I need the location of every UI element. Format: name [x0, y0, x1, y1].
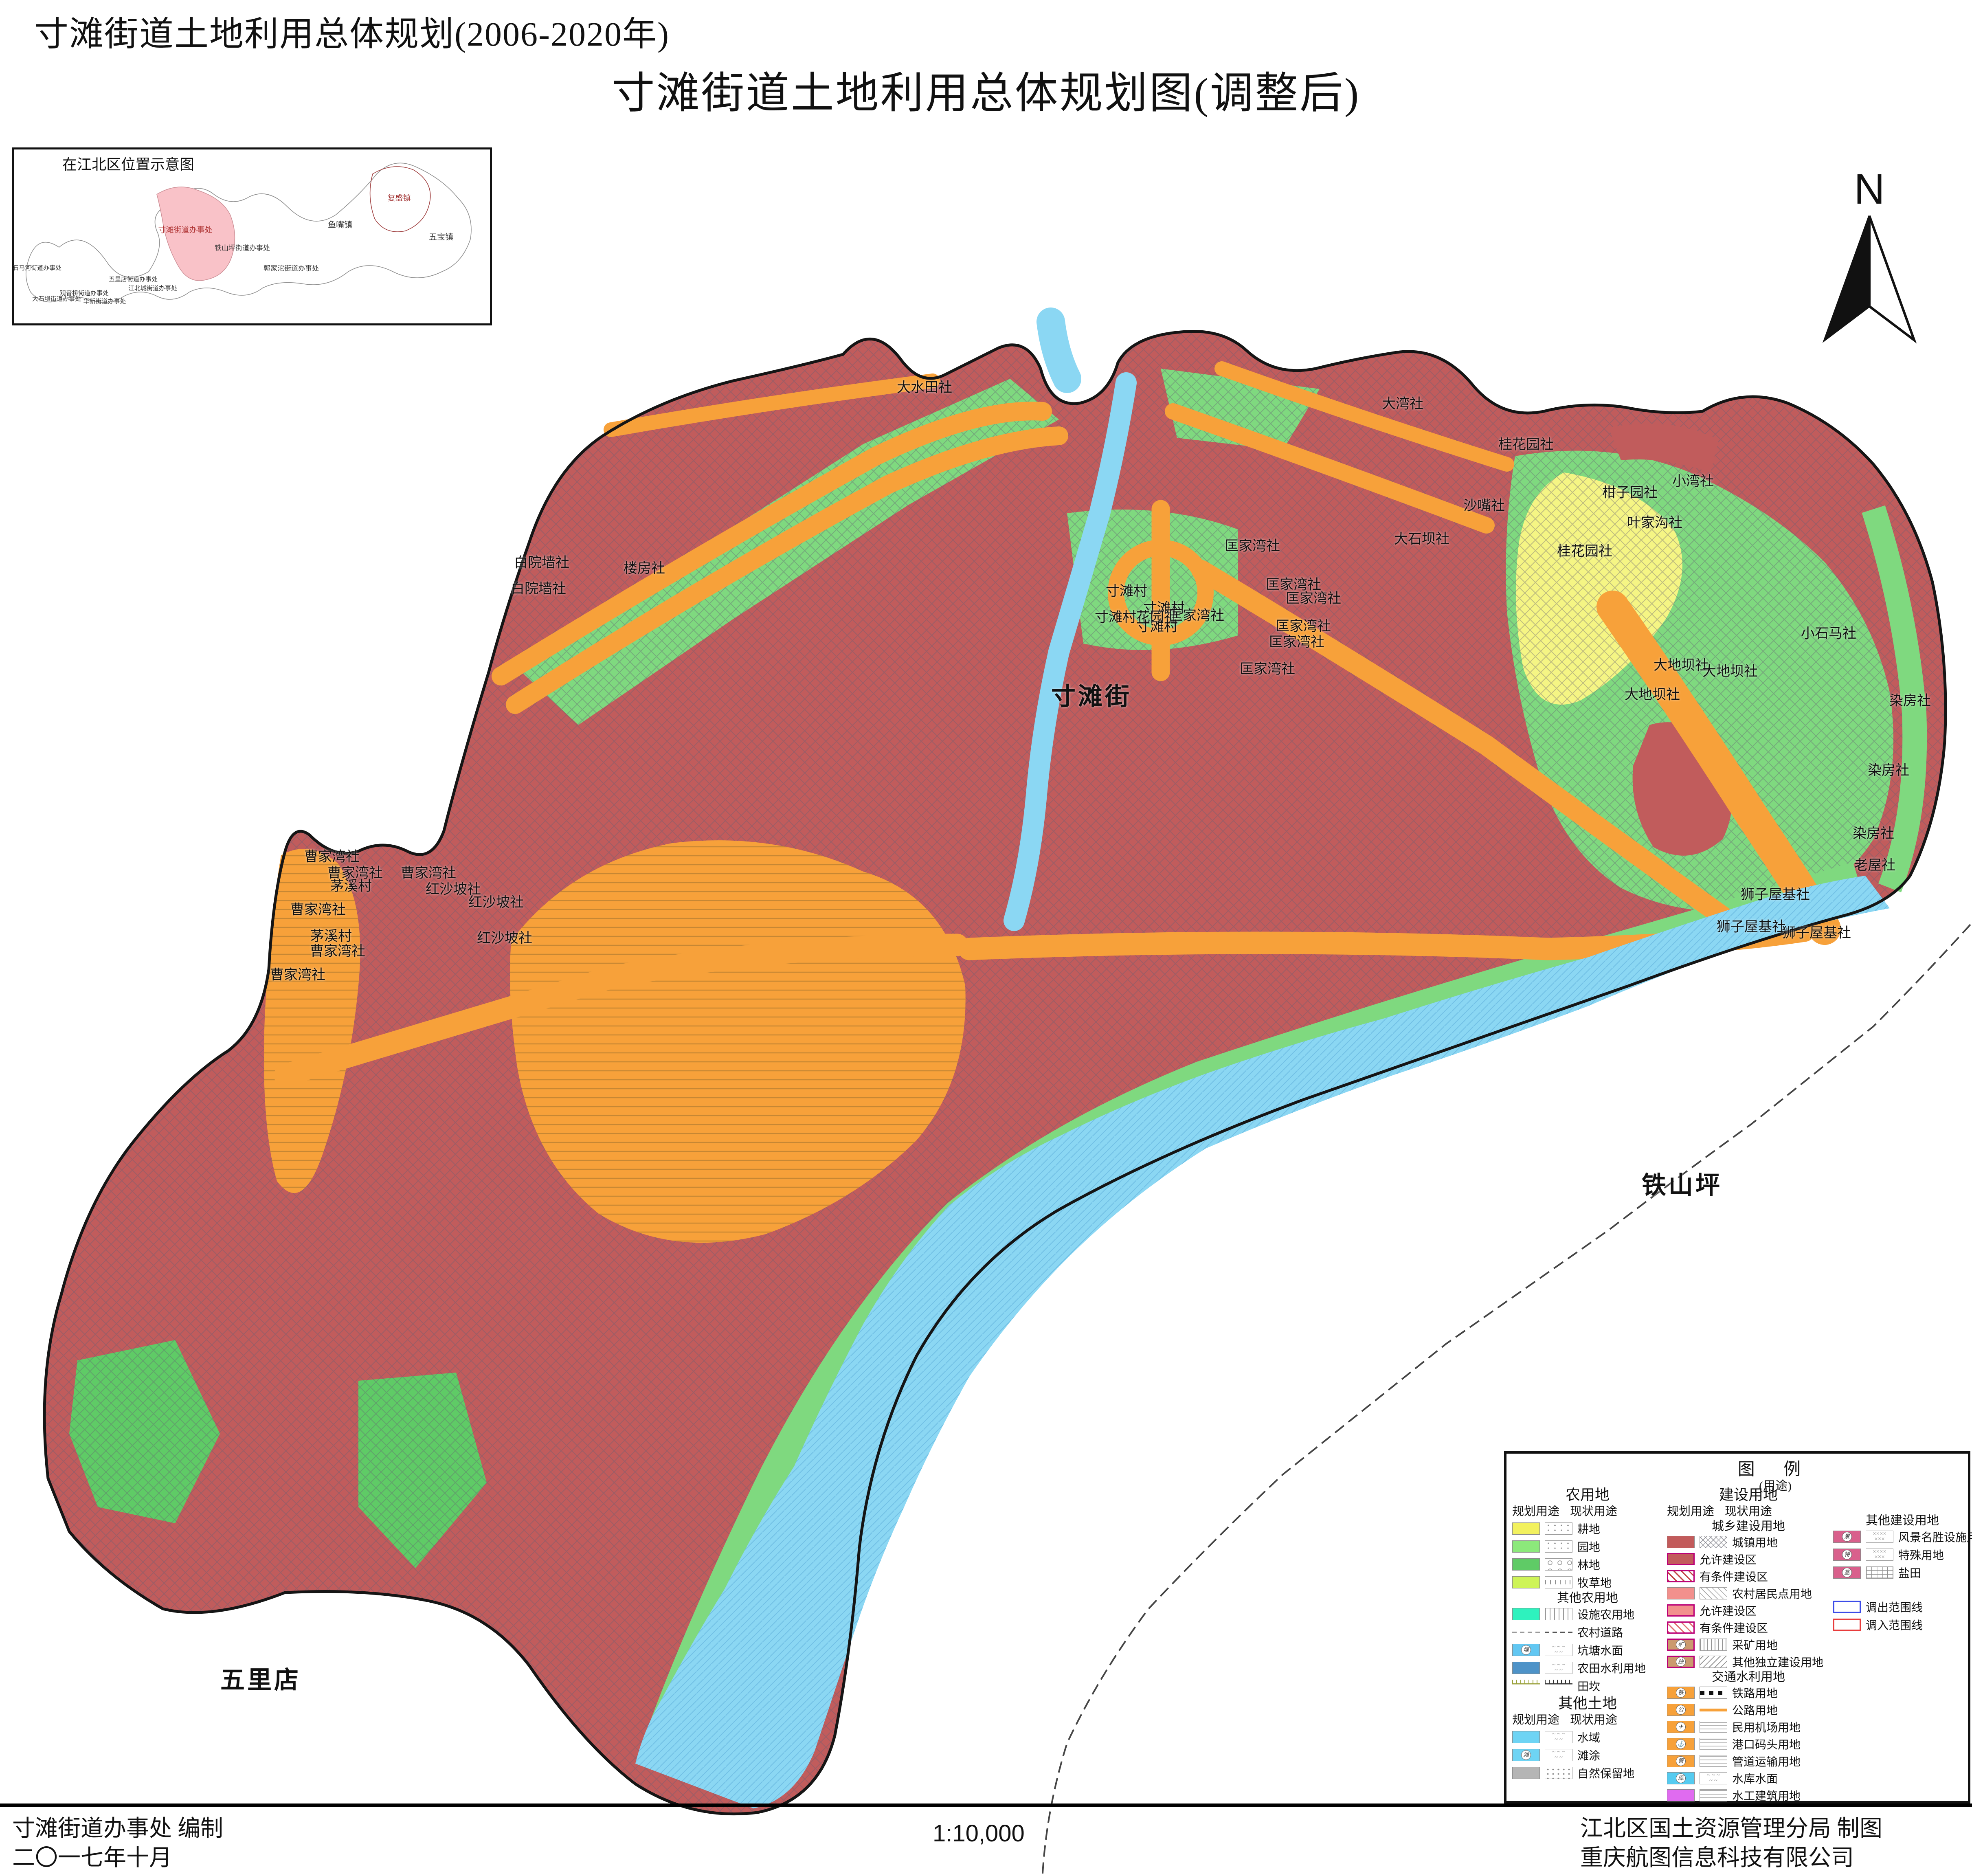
legend-symbol-icon: 独 [1676, 1657, 1686, 1667]
inset-label: 大石坝街道办事处 [32, 294, 81, 303]
inset-label: 复盛镇 [387, 192, 411, 203]
legend-row: 特特殊用地 [1833, 1546, 1972, 1564]
legend-section-title: 建设用地 [1667, 1486, 1830, 1503]
legend-plan-swatch: 特 [1833, 1549, 1861, 1561]
legend-label: 调入范围线 [1866, 1617, 1923, 1633]
inset-label: 五宝镇 [429, 231, 453, 242]
legend-label: 铁路用地 [1732, 1685, 1778, 1701]
map-label: 大水田社 [897, 376, 952, 396]
legend-status-swatch [1545, 1644, 1572, 1656]
map-label: 大地坝社 [1702, 660, 1758, 680]
legend-plan-swatch: 塘 [1512, 1644, 1540, 1656]
legend-column-construction: 建设用地规划用途现状用途城乡建设用地城镇用地允许建设区有条件建设区农村居民点用地… [1667, 1486, 1830, 1804]
legend-label: 自然保留地 [1577, 1765, 1634, 1781]
legend-label: 城镇用地 [1732, 1534, 1778, 1550]
legend-plan-swatch: 管 [1667, 1755, 1695, 1767]
legend-row: 园地 [1512, 1538, 1663, 1555]
legend-plan-swatch: 铁 [1667, 1687, 1695, 1699]
inset-label: 铁山坪街道办事处 [215, 242, 270, 253]
inset-label: 华新街道办事处 [83, 297, 126, 305]
legend-status-swatch [1545, 1626, 1572, 1638]
map-label: 染房社 [1868, 759, 1909, 779]
legend-plan-swatch: 独 [1667, 1656, 1695, 1668]
legend-status-swatch [1700, 1789, 1727, 1801]
legend-label: 允许建设区 [1700, 1551, 1757, 1567]
map-label: 柑子园社 [1602, 481, 1658, 501]
legend-plan-swatch: ⚓ [1667, 1738, 1695, 1750]
legend-symbol-icon: 矿 [1676, 1640, 1686, 1650]
legend-plan-swatch [1512, 1576, 1540, 1588]
legend-label: 采矿用地 [1732, 1637, 1778, 1653]
legend-status-swatch [1866, 1566, 1893, 1579]
map-label: 白院墙社 [514, 551, 569, 571]
legend-symbol-icon: 特 [1842, 1550, 1852, 1560]
legend-label: 滩涂 [1577, 1747, 1600, 1763]
legend-label: 水库水面 [1732, 1770, 1778, 1786]
legend-status-swatch [1700, 1587, 1727, 1599]
map-label: 大地坝社 [1625, 683, 1680, 703]
legend-plan-swatch [1667, 1536, 1695, 1548]
legend-plan-swatch [1512, 1626, 1540, 1638]
legend-status-swatch [1545, 1558, 1572, 1571]
map-label: 小石马社 [1801, 622, 1856, 642]
planned-use-header: 规划用途 [1512, 1712, 1559, 1728]
legend-plan-swatch [1512, 1767, 1540, 1779]
legend-row: 城镇用地 [1667, 1533, 1830, 1551]
legend-status-swatch [1700, 1738, 1727, 1750]
legend-label: 管道运输用地 [1732, 1753, 1801, 1769]
legend-status-swatch [1700, 1536, 1727, 1548]
legend-row: 田坎 [1512, 1677, 1663, 1695]
inset-label: 郭家沱街道办事处 [264, 263, 319, 273]
legend-spacer [1833, 1582, 1972, 1598]
map-label: 狮子屋基社 [1717, 916, 1786, 936]
legend: 图 例 (用途) 农用地规划用途现状用途耕地园地林地牧草地其他农用地设施农用地农… [1504, 1451, 1970, 1804]
legend-row: 调入范围线 [1833, 1616, 1972, 1634]
legend-label: 有条件建设区 [1700, 1568, 1768, 1584]
footer-cartography: 江北区国土资源管理分局 制图 [1580, 1810, 1882, 1843]
legend-symbol-icon: 铁 [1676, 1688, 1686, 1698]
map-label: 楼房社 [624, 557, 665, 577]
map-label: 寸滩村 [1106, 580, 1147, 600]
map-label: 桂花园社 [1498, 433, 1554, 453]
legend-symbol-icon: 塘 [1521, 1645, 1531, 1655]
legend-symbol-icon: ⚓ [1676, 1739, 1686, 1749]
legend-plan-swatch [1512, 1608, 1540, 1620]
footer-compiler: 寸滩街道办事处 编制 [12, 1810, 223, 1843]
legend-row: 滩滩涂 [1512, 1746, 1663, 1764]
legend-status-swatch [1545, 1608, 1572, 1620]
legend-status-swatch [1545, 1749, 1572, 1761]
legend-status-swatch [1545, 1522, 1572, 1535]
legend-row: 盐盐田 [1833, 1564, 1972, 1582]
map-label: 曹家湾社 [270, 964, 325, 984]
footer-company: 重庆航图信息科技有限公司 [1580, 1839, 1854, 1872]
legend-label: 园地 [1577, 1538, 1600, 1555]
legend-status-swatch [1700, 1704, 1727, 1716]
legend-row: 库水库水面 [1667, 1770, 1830, 1787]
legend-plan-swatch [1833, 1601, 1861, 1613]
legend-row: 景风景名胜设施用地 [1833, 1528, 1972, 1546]
map-label: 五里店 [220, 1661, 301, 1696]
legend-status-swatch [1866, 1549, 1893, 1561]
map-scale: 1:10,000 [933, 1820, 1025, 1847]
legend-status-swatch [1700, 1772, 1727, 1784]
map-label: 狮子屋基社 [1741, 883, 1810, 903]
legend-status-swatch [1545, 1767, 1572, 1779]
legend-row: ⚓港口码头用地 [1667, 1735, 1830, 1753]
legend-row: 自然保留地 [1512, 1764, 1663, 1782]
legend-label: 耕地 [1577, 1520, 1600, 1537]
legend-label: 水域 [1577, 1729, 1600, 1745]
legend-status-swatch [1545, 1680, 1572, 1692]
legend-plan-swatch: 盐 [1833, 1566, 1861, 1579]
legend-label: 公路用地 [1732, 1702, 1778, 1718]
current-use-header: 现状用途 [1570, 1712, 1617, 1728]
legend-row: 独其他独立建设用地 [1667, 1653, 1830, 1670]
legend-status-swatch [1700, 1721, 1727, 1733]
legend-label: 林地 [1577, 1556, 1600, 1573]
legend-status-swatch [1700, 1639, 1727, 1651]
legend-symbol-icon: 盐 [1842, 1568, 1852, 1577]
legend-plan-swatch: 矿 [1667, 1639, 1695, 1651]
north-arrow: N [1808, 159, 1939, 350]
map-label: 染房社 [1853, 822, 1894, 842]
legend-subsection-title: 交通水利用地 [1667, 1670, 1830, 1684]
inset-location-map: 在江北区位置示意图 寸滩街道办事处鱼嘴镇复盛镇五宝镇铁山坪街道办事处郭家沱街道办… [12, 147, 492, 325]
legend-plan-swatch [1667, 1587, 1695, 1599]
legend-row: 允许建设区 [1667, 1602, 1830, 1619]
legend-label: 特殊用地 [1898, 1546, 1944, 1563]
legend-symbol-icon: ✈ [1676, 1722, 1686, 1732]
legend-section-title: 农用地 [1512, 1486, 1663, 1503]
map-label: 桂花园社 [1557, 540, 1612, 560]
legend-row: 农村居民点用地 [1667, 1585, 1830, 1602]
legend-status-swatch [1545, 1540, 1572, 1553]
legend-label: 设施农用地 [1577, 1606, 1634, 1622]
map-label: 老屋社 [1854, 854, 1895, 874]
legend-label: 牧草地 [1577, 1574, 1612, 1590]
legend-plan-swatch: 库 [1667, 1772, 1695, 1784]
map-label: 铁山坪 [1642, 1166, 1722, 1201]
map-label: 小湾社 [1672, 470, 1714, 490]
legend-section-title: 其他土地 [1512, 1695, 1663, 1712]
legend-plan-swatch [1667, 1604, 1695, 1617]
legend-label: 田坎 [1577, 1678, 1600, 1694]
map-label: 大地坝社 [1654, 654, 1709, 674]
map-label: 叶家沟社 [1627, 512, 1682, 532]
legend-row: 管管道运输用地 [1667, 1753, 1830, 1770]
legend-plan-swatch [1833, 1619, 1861, 1631]
legend-usage-header: 规划用途现状用途 [1512, 1712, 1663, 1728]
legend-row: 耕地 [1512, 1520, 1663, 1538]
legend-label: 民用机场用地 [1732, 1719, 1801, 1735]
map-label: 曹家湾社 [310, 940, 365, 960]
planning-map-page: { "titles": { "top": "寸滩街道土地利用总体规划(2006-… [0, 0, 1972, 1876]
legend-row: 农村道路 [1512, 1623, 1663, 1641]
legend-label: 调出范围线 [1866, 1599, 1923, 1615]
legend-row: 塘坑塘水面 [1512, 1641, 1663, 1659]
legend-label: 盐田 [1898, 1564, 1921, 1581]
footer-divider [0, 1804, 1972, 1807]
legend-status-swatch [1866, 1531, 1893, 1543]
legend-plan-swatch [1512, 1680, 1540, 1692]
inset-label: 五里店街道办事处 [109, 275, 158, 283]
legend-plan-swatch: 公 [1667, 1704, 1695, 1716]
legend-plan-swatch [1512, 1558, 1540, 1571]
legend-column-other-construction: 其他建设用地景风景名胜设施用地特特殊用地盐盐田调出范围线调入范围线 [1833, 1514, 1972, 1634]
legend-row: 铁铁路用地 [1667, 1684, 1830, 1701]
legend-status-swatch [1700, 1656, 1727, 1668]
legend-symbol-icon: 景 [1842, 1532, 1852, 1542]
legend-symbol-icon: 库 [1676, 1773, 1686, 1783]
legend-label: 允许建设区 [1700, 1602, 1757, 1619]
current-use-header: 现状用途 [1725, 1503, 1772, 1520]
map-label: 寸滩街 [1051, 677, 1132, 712]
legend-plan-swatch: ✈ [1667, 1721, 1695, 1733]
map-label: 大石坝社 [1394, 528, 1449, 548]
map-label: 染房社 [1889, 690, 1931, 710]
legend-plan-swatch [1512, 1540, 1540, 1553]
legend-row: 公公路用地 [1667, 1701, 1830, 1718]
legend-subsection-title: 城乡建设用地 [1667, 1520, 1830, 1533]
legend-row: 牧草地 [1512, 1573, 1663, 1591]
legend-status-swatch [1545, 1731, 1572, 1743]
legend-status-swatch [1545, 1576, 1572, 1588]
legend-plan-swatch [1512, 1731, 1540, 1743]
legend-subsection-title: 其他建设用地 [1833, 1514, 1972, 1528]
legend-usage-header: 规划用途现状用途 [1667, 1503, 1830, 1520]
map-label: 红沙坡社 [477, 927, 532, 947]
map-label: 匡家湾社 [1240, 658, 1295, 678]
legend-row: 矿采矿用地 [1667, 1636, 1830, 1653]
legend-row: 允许建设区 [1667, 1551, 1830, 1568]
legend-label: 风景名胜设施用地 [1898, 1529, 1972, 1545]
legend-label: 有条件建设区 [1700, 1619, 1768, 1636]
legend-plan-swatch [1667, 1621, 1695, 1634]
legend-plan-swatch [1667, 1570, 1695, 1582]
map-main-title: 寸滩街道土地利用总体规划图(调整后) [0, 58, 1972, 121]
legend-row: 水工建筑用地 [1667, 1787, 1830, 1804]
legend-plan-swatch [1667, 1789, 1695, 1801]
legend-row: 水域 [1512, 1728, 1663, 1746]
inset-label: 寸滩街道办事处 [158, 224, 212, 235]
legend-plan-swatch: 景 [1833, 1531, 1861, 1543]
legend-plan-swatch [1667, 1553, 1695, 1565]
legend-label: 港口码头用地 [1732, 1736, 1801, 1752]
planned-use-header: 规划用途 [1667, 1503, 1714, 1520]
legend-label: 农村居民点用地 [1732, 1585, 1812, 1601]
map-label: 茅溪村 [330, 875, 372, 895]
legend-label: 其他独立建设用地 [1732, 1654, 1823, 1670]
legend-label: 坑塘水面 [1577, 1642, 1623, 1658]
legend-row: ✈民用机场用地 [1667, 1718, 1830, 1735]
map-label: 匡家湾社 [1286, 587, 1341, 607]
map-label: 匡家湾社 [1269, 631, 1324, 651]
map-label: 曹家湾社 [290, 898, 346, 918]
legend-plan-swatch: 滩 [1512, 1749, 1540, 1761]
legend-row: 农田水利用地 [1512, 1659, 1663, 1677]
legend-symbol-icon: 管 [1676, 1756, 1686, 1766]
legend-plan-swatch [1512, 1662, 1540, 1674]
legend-usage-header: 规划用途现状用途 [1512, 1503, 1663, 1520]
planned-use-header: 规划用途 [1512, 1503, 1559, 1520]
page-title: 寸滩街道土地利用总体规划(2006-2020年) [34, 7, 670, 56]
legend-row: 有条件建设区 [1667, 1568, 1830, 1585]
legend-plan-swatch [1512, 1522, 1540, 1535]
legend-status-swatch [1700, 1755, 1727, 1767]
map-label: 白院墙社 [511, 578, 566, 598]
footer-date: 二〇一七年十月 [12, 1839, 172, 1872]
inset-label: 鱼嘴镇 [328, 218, 352, 230]
legend-label: 农村道路 [1577, 1624, 1623, 1640]
legend-symbol-icon: 滩 [1521, 1750, 1531, 1760]
map-label: 狮子屋基社 [1782, 922, 1851, 942]
legend-status-swatch [1545, 1662, 1572, 1674]
legend-row: 设施农用地 [1512, 1605, 1663, 1623]
map-label: 匡家湾社 [1169, 604, 1224, 624]
legend-subsection-title: 其他农用地 [1512, 1591, 1663, 1605]
legend-row: 林地 [1512, 1555, 1663, 1573]
current-use-header: 现状用途 [1570, 1503, 1617, 1520]
map-label: 红沙坡社 [468, 891, 524, 911]
legend-column-agricultural: 农用地规划用途现状用途耕地园地林地牧草地其他农用地设施农用地农村道路塘坑塘水面农… [1512, 1486, 1663, 1782]
legend-label: 水工建筑用地 [1732, 1787, 1801, 1804]
inset-label: 石马河街道办事处 [13, 264, 61, 272]
legend-label: 农田水利用地 [1577, 1660, 1646, 1676]
inset-label: 江北城街道办事处 [128, 284, 177, 292]
map-label: 大湾社 [1382, 393, 1423, 413]
north-label: N [1854, 165, 1885, 213]
legend-row: 调出范围线 [1833, 1598, 1972, 1616]
map-label: 匡家湾社 [1225, 535, 1280, 555]
legend-row: 有条件建设区 [1667, 1619, 1830, 1636]
legend-symbol-icon: 公 [1676, 1705, 1686, 1715]
legend-status-swatch [1700, 1687, 1727, 1699]
map-label: 沙嘴社 [1463, 494, 1505, 514]
